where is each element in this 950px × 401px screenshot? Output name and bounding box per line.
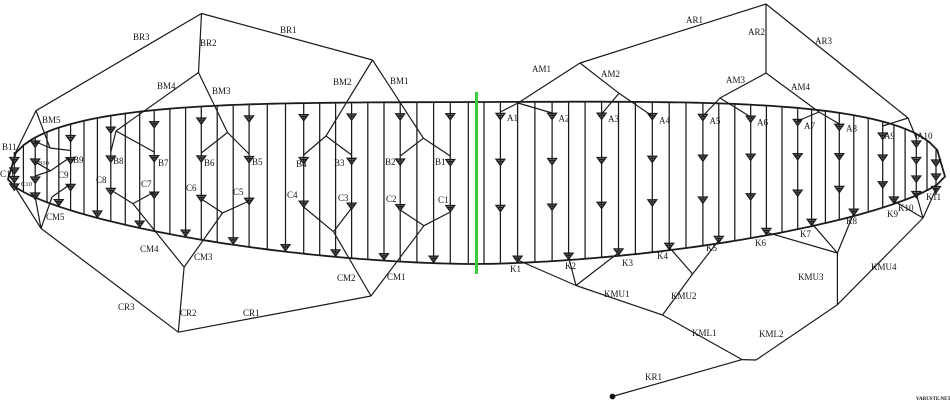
svg-text:C6: C6: [186, 183, 197, 193]
svg-text:B5: B5: [252, 157, 263, 167]
svg-text:CM3: CM3: [194, 252, 213, 262]
svg-text:A3: A3: [608, 114, 619, 124]
svg-text:CM2: CM2: [337, 273, 356, 283]
svg-text:B9: B9: [73, 155, 84, 165]
svg-text:KMU3: KMU3: [798, 272, 824, 282]
svg-text:A2: A2: [559, 114, 570, 124]
svg-text:KML2: KML2: [759, 329, 784, 339]
svg-text:KMU1: KMU1: [604, 289, 630, 299]
svg-text:A4: A4: [659, 116, 670, 126]
svg-text:C8: C8: [96, 175, 107, 185]
svg-text:CM1: CM1: [387, 272, 406, 282]
svg-text:KR1: KR1: [645, 372, 662, 382]
svg-text:A9: A9: [884, 131, 895, 141]
svg-text:K6: K6: [755, 238, 766, 248]
svg-text:BR3: BR3: [133, 32, 150, 42]
svg-text:C11: C11: [0, 169, 15, 179]
svg-text:K10: K10: [898, 203, 914, 213]
svg-text:KMU2: KMU2: [671, 291, 697, 301]
svg-text:C9: C9: [58, 170, 69, 180]
svg-text:A10: A10: [917, 131, 933, 141]
svg-text:K8: K8: [846, 216, 857, 226]
svg-text:B3: B3: [334, 158, 345, 168]
svg-text:BM5: BM5: [42, 115, 61, 125]
svg-text:K5: K5: [706, 243, 717, 253]
svg-text:K1: K1: [510, 264, 521, 274]
svg-text:KMU4: KMU4: [871, 262, 897, 272]
svg-text:B4: B4: [296, 159, 307, 169]
svg-text:C10: C10: [21, 181, 32, 188]
svg-text:C4: C4: [287, 190, 298, 200]
svg-text:KML1: KML1: [692, 328, 717, 338]
svg-text:K4: K4: [657, 251, 668, 261]
svg-text:B8: B8: [113, 156, 124, 166]
svg-text:BM2: BM2: [333, 77, 352, 87]
svg-text:CR3: CR3: [118, 302, 135, 312]
svg-text:CR2: CR2: [180, 308, 197, 318]
svg-text:C5: C5: [233, 187, 244, 197]
svg-text:AR2: AR2: [748, 27, 765, 37]
svg-text:A6: A6: [757, 118, 768, 128]
svg-text:BR1: BR1: [280, 25, 297, 35]
svg-text:B10: B10: [38, 160, 49, 167]
svg-text:K3: K3: [622, 258, 633, 268]
svg-text:BM1: BM1: [390, 76, 409, 86]
svg-text:AR1: AR1: [686, 15, 703, 25]
svg-text:B6: B6: [204, 158, 215, 168]
svg-text:AM2: AM2: [601, 69, 620, 79]
svg-text:AM1: AM1: [532, 64, 551, 74]
svg-text:A7: A7: [804, 121, 815, 131]
svg-text:A8: A8: [846, 124, 857, 134]
svg-text:K2: K2: [565, 261, 576, 271]
svg-text:BM4: BM4: [157, 81, 176, 91]
svg-text:B11: B11: [2, 142, 17, 152]
svg-text:C7: C7: [141, 179, 152, 189]
svg-text:A1: A1: [507, 113, 518, 123]
svg-text:C2: C2: [386, 194, 397, 204]
svg-text:CR1: CR1: [243, 308, 260, 318]
svg-text:AM4: AM4: [791, 82, 811, 92]
svg-text:K9: K9: [887, 209, 898, 219]
svg-text:VARUSTE.NET: VARUSTE.NET: [916, 397, 950, 401]
svg-text:AR3: AR3: [815, 36, 833, 46]
svg-text:B1: B1: [435, 157, 446, 167]
svg-text:CM5: CM5: [46, 212, 65, 222]
svg-text:B7: B7: [158, 158, 169, 168]
svg-text:AM3: AM3: [726, 75, 746, 85]
svg-text:C3: C3: [338, 193, 349, 203]
svg-text:K7: K7: [800, 229, 811, 239]
svg-text:BM3: BM3: [212, 86, 231, 96]
svg-text:K11: K11: [926, 192, 941, 202]
svg-text:A5: A5: [710, 116, 721, 126]
svg-text:CM4: CM4: [140, 244, 159, 254]
svg-text:BR2: BR2: [200, 38, 217, 48]
svg-text:C1: C1: [438, 195, 449, 205]
svg-text:B2: B2: [385, 157, 396, 167]
